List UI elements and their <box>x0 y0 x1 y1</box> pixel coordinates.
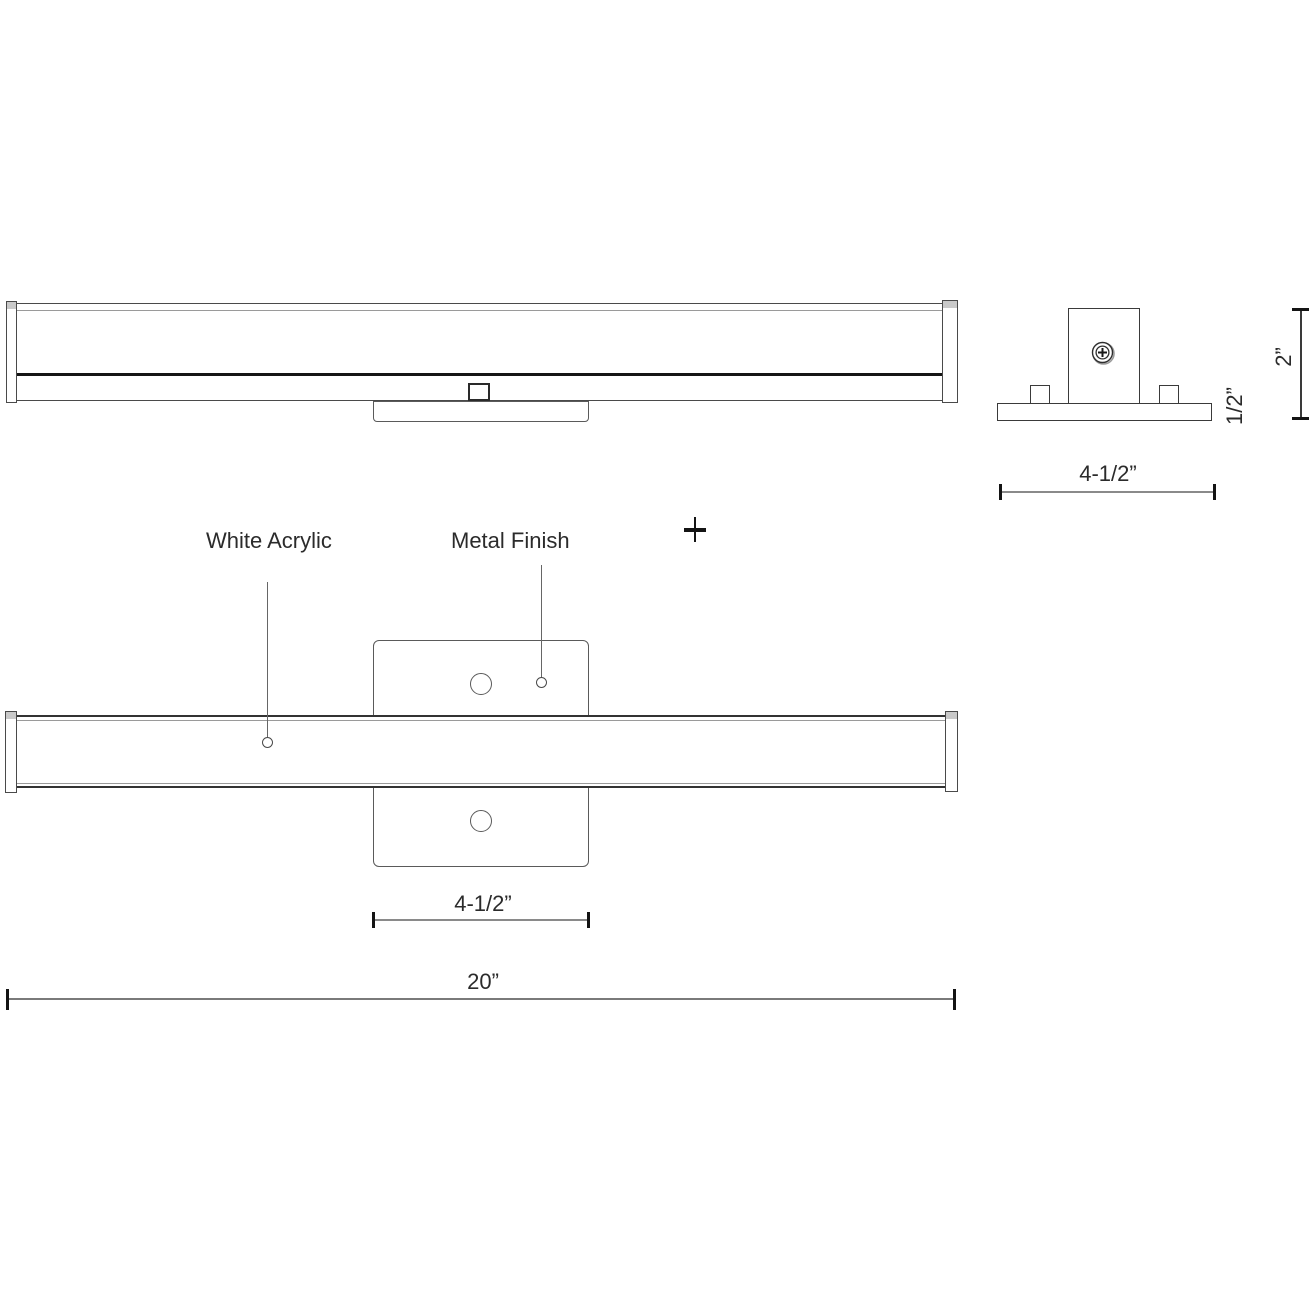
dim-end-width-tick-right <box>1213 484 1216 500</box>
metal-finish-leader-dot <box>536 677 547 688</box>
front-view <box>0 600 1312 1020</box>
mounting-hole-top <box>470 673 492 695</box>
front-view-bar-top-inner-line <box>17 720 945 721</box>
dim-overall-width-text: 20” <box>423 969 543 995</box>
front-view-bar-bottom-inner-line <box>17 783 945 784</box>
plus-mark <box>684 517 708 543</box>
dim-end-width-line <box>1000 491 1215 493</box>
dim-overall-width-tick-left <box>6 989 9 1010</box>
screw-icon <box>1089 339 1117 367</box>
end-cap-shade <box>6 712 16 719</box>
dim-half-in-text: 1/2” <box>1223 376 1247 436</box>
dim-2in-line <box>1300 309 1302 419</box>
plus-mark-vertical <box>694 517 696 542</box>
end-view-base-plate <box>997 403 1212 421</box>
end-view: 2” 1/2” 4-1/2” <box>0 0 1312 520</box>
front-view-end-cap-right <box>945 711 958 792</box>
dim-overall-width-tick-right <box>953 989 956 1010</box>
end-cap-shade <box>946 712 957 719</box>
white-acrylic-label: White Acrylic <box>206 528 332 554</box>
dim-plate-width-text: 4-1/2” <box>423 891 543 917</box>
dim-2in-tick-bottom <box>1292 417 1309 420</box>
white-acrylic-leader-dot <box>262 737 273 748</box>
front-view-bar-top-outer-line <box>17 715 945 717</box>
front-view-end-cap-left <box>5 711 17 793</box>
end-view-nub-right <box>1159 385 1179 404</box>
dim-2in-tick-top <box>1292 308 1309 311</box>
dim-plate-width-tick-left <box>372 912 375 928</box>
mounting-hole-bottom <box>470 810 492 832</box>
metal-finish-leader-line <box>541 565 542 678</box>
dim-end-width-tick-left <box>999 484 1002 500</box>
dim-2in-text: 2” <box>1272 335 1296 379</box>
white-acrylic-leader-line <box>267 582 268 738</box>
front-view-bar-bottom-outer-line <box>17 786 945 788</box>
dim-end-width-text: 4-1/2” <box>1048 461 1168 487</box>
front-view-bar-body <box>17 715 945 787</box>
end-view-nub-left <box>1030 385 1050 404</box>
dim-plate-width-tick-right <box>587 912 590 928</box>
dim-overall-width-line <box>7 998 956 1000</box>
dim-plate-width-line <box>373 919 589 921</box>
metal-finish-label: Metal Finish <box>451 528 570 554</box>
